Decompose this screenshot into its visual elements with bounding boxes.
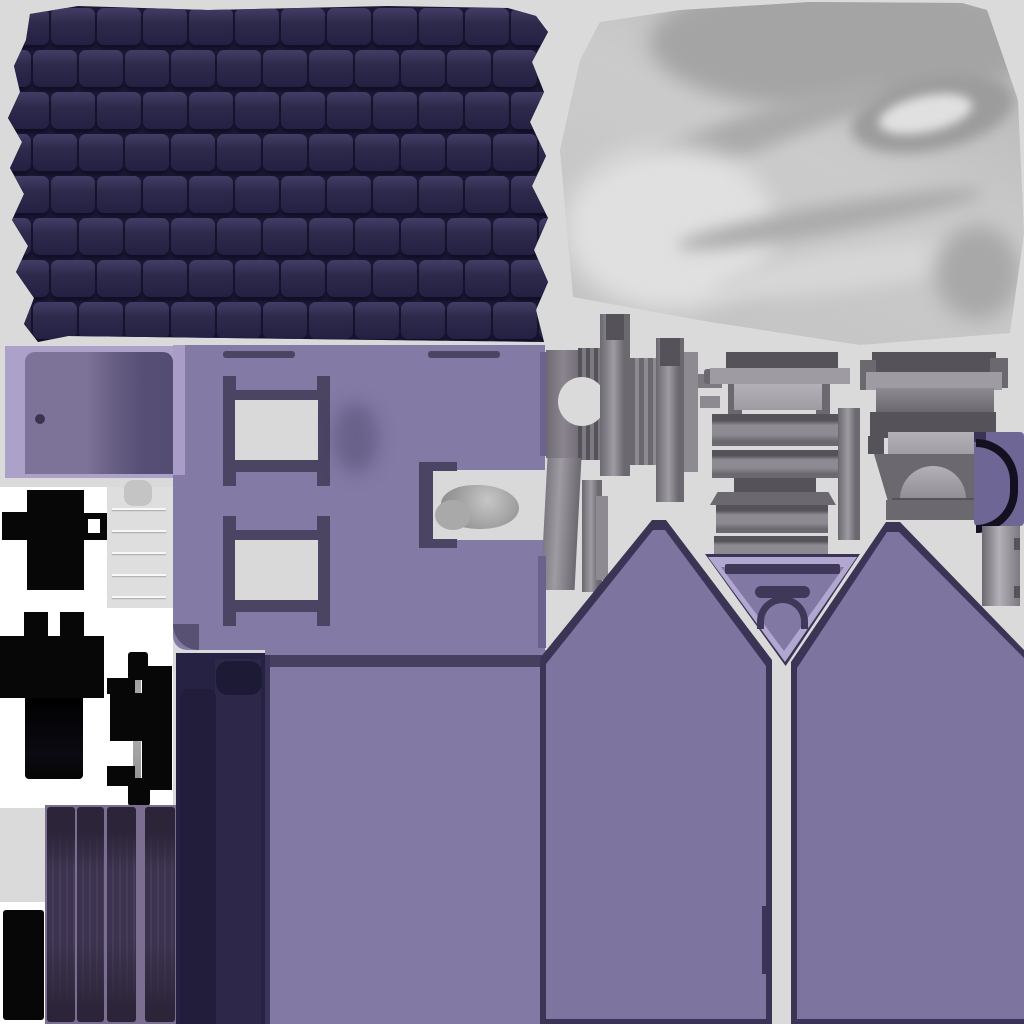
roof-tile	[539, 218, 548, 255]
roof-tile	[8, 8, 49, 45]
texture-atlas-canvas	[0, 0, 1024, 1024]
roof-tile-row	[8, 216, 548, 258]
frame-tray	[888, 432, 978, 456]
roof-tile	[97, 92, 141, 129]
roof-tile	[373, 8, 417, 45]
roof-tile	[8, 50, 31, 87]
gable-bottom-edge	[546, 1019, 766, 1024]
roof-tile	[8, 176, 49, 213]
roof-tile	[125, 218, 169, 255]
roof-tile-row	[8, 174, 548, 216]
sill-side-strip	[684, 352, 698, 472]
hinge-arm	[107, 678, 135, 694]
roof-tile	[493, 218, 537, 255]
roof-tile	[125, 302, 169, 339]
fitting-background	[0, 608, 173, 808]
roof-tile	[263, 302, 307, 339]
roof-tile	[309, 302, 353, 339]
window-post	[317, 471, 330, 486]
roof-tile	[171, 218, 215, 255]
notch-frame-bar	[419, 462, 433, 548]
roof-tile	[143, 260, 187, 297]
roof-tile	[327, 92, 371, 129]
roof-tile	[465, 176, 509, 213]
notch-frame-stub	[433, 539, 457, 548]
roof-tile	[419, 176, 463, 213]
roof-tile	[235, 8, 279, 45]
window-post	[223, 611, 236, 626]
wall-corner-shadow	[173, 624, 199, 650]
roof-tile	[97, 176, 141, 213]
cylinder-seam	[112, 530, 166, 532]
roof-tile	[235, 92, 279, 129]
roof-tile	[51, 176, 95, 213]
roof-tile	[419, 92, 463, 129]
roof-tile	[401, 50, 445, 87]
wood-plank	[107, 807, 136, 1022]
roof-shingles-texture	[8, 6, 548, 342]
roof-tile	[217, 50, 261, 87]
roof-tile	[281, 8, 325, 45]
window-opening	[235, 540, 318, 600]
sill-notch	[558, 377, 606, 426]
cylinder-seam	[112, 508, 166, 510]
navy-panel-light-column	[215, 659, 261, 1024]
roof-tile	[493, 50, 537, 87]
roof-tile	[79, 302, 123, 339]
roof-tile	[51, 260, 95, 297]
roof-tile-row	[8, 48, 548, 90]
sill-stripe-bars	[630, 358, 656, 465]
roof-tile	[79, 50, 123, 87]
roof-tile	[419, 260, 463, 297]
roof-tile	[33, 302, 77, 339]
roof-tile	[189, 92, 233, 129]
sill-small-bar	[734, 478, 816, 493]
roof-tile	[97, 260, 141, 297]
roof-tile	[189, 8, 233, 45]
black-fitting-arm	[2, 512, 27, 540]
roof-tile-row	[8, 258, 548, 300]
roof-tile	[309, 50, 353, 87]
window-post	[317, 516, 330, 531]
roof-tile	[33, 218, 77, 255]
sill-bar-tab	[660, 338, 680, 366]
window-soft-shadow	[333, 403, 378, 473]
wood-plank	[77, 807, 104, 1022]
roof-tile	[511, 92, 548, 129]
roof-tile	[465, 92, 509, 129]
roof-tile	[79, 218, 123, 255]
roof-tile	[447, 134, 491, 171]
roof-tile	[263, 134, 307, 171]
roof-tile	[281, 92, 325, 129]
cylinder-seam	[112, 574, 166, 576]
window-opening	[235, 400, 318, 460]
notch-gray-blob-lobe	[435, 500, 471, 530]
frame-rail	[710, 368, 850, 384]
roof-tile	[447, 218, 491, 255]
roof-tile	[355, 218, 399, 255]
black-bracket-stem	[25, 698, 83, 779]
window-post	[223, 471, 236, 486]
roof-tile-row	[8, 90, 548, 132]
roof-tile	[401, 302, 445, 339]
roof-tile	[539, 50, 548, 87]
sill-slab	[712, 414, 842, 446]
roof-tile	[401, 134, 445, 171]
roof-tile-row	[8, 6, 548, 48]
roof-tile	[143, 92, 187, 129]
window-post	[317, 376, 330, 391]
roof-tile	[189, 260, 233, 297]
black-fitting-hole	[88, 519, 100, 533]
roof-tile	[171, 50, 215, 87]
navy-panel-dark-column	[180, 689, 216, 1024]
roof-tile	[327, 8, 371, 45]
roof-tile	[447, 302, 491, 339]
door-slab	[25, 352, 173, 474]
roof-tile-row	[8, 300, 548, 342]
roof-tile	[171, 302, 215, 339]
roof-tile	[235, 260, 279, 297]
satin-curtain-texture	[560, 0, 1024, 348]
lower-wall-top-band	[265, 655, 548, 667]
window-post	[223, 516, 236, 531]
lower-wall-texture	[265, 650, 548, 1024]
roof-tile	[373, 176, 417, 213]
sill-bar-tab	[606, 314, 624, 340]
black-bracket-prong	[60, 612, 84, 638]
roof-tile	[8, 218, 31, 255]
black-fitting-cross	[27, 490, 84, 590]
roof-tile	[33, 50, 77, 87]
frame-body	[876, 388, 994, 412]
roof-tile	[419, 8, 463, 45]
vent-top-bar	[725, 564, 840, 574]
roof-tile	[465, 8, 509, 45]
door-knob	[35, 414, 45, 424]
hinge-cap-bottom	[128, 778, 150, 806]
roof-tile	[373, 260, 417, 297]
wall-left-lavender-edge	[173, 345, 185, 475]
roof-tile	[355, 302, 399, 339]
roof-tile	[143, 8, 187, 45]
roof-tile	[465, 260, 509, 297]
roof-tile	[8, 260, 49, 297]
roof-tile	[8, 92, 49, 129]
arch-base	[886, 500, 978, 520]
roof-tile	[217, 218, 261, 255]
attic-vent-slot	[428, 351, 500, 358]
roof-tile	[97, 8, 141, 45]
black-bracket-base	[0, 636, 104, 698]
roof-tile	[373, 92, 417, 129]
black-plate	[3, 910, 44, 1020]
lower-wall-left-edge	[265, 655, 270, 1024]
plank-door-texture	[45, 805, 176, 1024]
roof-tile	[539, 302, 548, 339]
sill-rod	[700, 396, 720, 408]
navy-panel-blob	[216, 661, 262, 695]
roof-tile	[79, 134, 123, 171]
roof-tile	[189, 176, 233, 213]
roof-tile	[263, 50, 307, 87]
roof-tile	[263, 218, 307, 255]
roof-tile	[171, 134, 215, 171]
gable-hinge-mark	[762, 906, 770, 974]
frame-tray	[734, 384, 822, 410]
notch-frame-stub	[433, 462, 457, 471]
roof-tile	[235, 176, 279, 213]
gable-bottom-edge	[797, 1019, 1024, 1024]
roof-tile	[125, 50, 169, 87]
roof-tile	[51, 8, 95, 45]
cylinder-seam	[112, 596, 166, 598]
cylinder-cap-top	[124, 480, 152, 506]
arc-piece	[974, 432, 1024, 526]
roof-tile	[125, 134, 169, 171]
roof-tile	[539, 134, 548, 171]
roof-tile	[143, 176, 187, 213]
window-frame	[223, 390, 330, 472]
fabric-fold-shadow-br	[935, 225, 1020, 320]
arch-dome	[900, 466, 966, 502]
roof-tile	[511, 260, 548, 297]
hinge-block	[142, 666, 172, 790]
roof-tile	[217, 302, 261, 339]
roof-tile	[309, 134, 353, 171]
roof-tile	[493, 134, 537, 171]
roof-tile	[281, 176, 325, 213]
roof-tile	[327, 260, 371, 297]
roof-tile	[33, 134, 77, 171]
attic-vent-slot	[223, 351, 295, 358]
frame-top-bar	[872, 352, 996, 372]
roof-tile-row	[8, 132, 548, 174]
frame-foot	[868, 436, 884, 454]
roof-tile	[327, 176, 371, 213]
roof-tile	[8, 134, 31, 171]
window-frame	[223, 530, 330, 612]
wood-plank	[47, 807, 75, 1022]
roof-tile	[217, 134, 261, 171]
roof-tile	[447, 50, 491, 87]
sill-trapezoid	[710, 492, 836, 505]
door-frame-texture	[5, 346, 186, 478]
window-post	[317, 611, 330, 626]
roof-tile	[51, 92, 95, 129]
roof-tile	[281, 260, 325, 297]
roof-tile	[511, 176, 548, 213]
roof-tile	[309, 218, 353, 255]
wood-plank	[145, 807, 175, 1022]
gable-vent-triangle	[705, 554, 860, 666]
roof-tile	[401, 218, 445, 255]
roof-tile	[8, 302, 31, 339]
window-post	[223, 376, 236, 391]
black-bracket-prong	[24, 612, 48, 638]
roof-tile	[355, 50, 399, 87]
roof-tile	[355, 134, 399, 171]
cylinder-seam	[112, 552, 166, 554]
roof-tile	[493, 302, 537, 339]
roof-tile	[511, 8, 548, 45]
navy-panel-texture	[176, 653, 265, 1024]
sill-slab	[712, 450, 842, 478]
front-wall-texture	[173, 345, 545, 650]
